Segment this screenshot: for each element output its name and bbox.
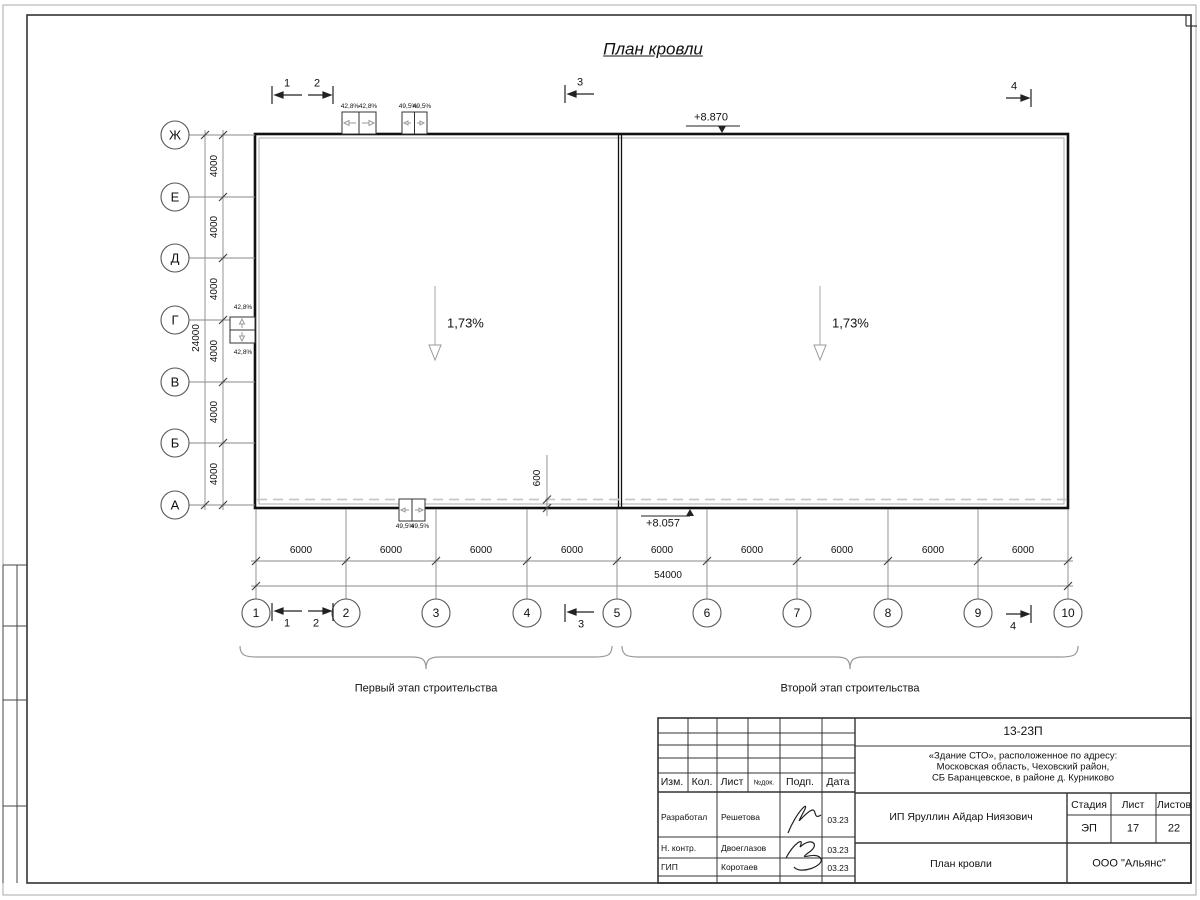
stage-braces	[240, 646, 1078, 669]
section-mark-3: 3	[577, 78, 583, 89]
sheet-title: План кровли	[930, 859, 992, 870]
dim-6000: 6000	[470, 546, 492, 556]
tb-header-list: Лист	[721, 777, 744, 788]
grid-col-label: 5	[614, 607, 621, 619]
dim-6000: 6000	[290, 546, 312, 556]
dim-4000: 4000	[210, 463, 220, 485]
tb-date: 03.23	[827, 816, 848, 825]
tb-role: ГИП	[661, 863, 678, 872]
tb-list-value: 17	[1127, 824, 1139, 835]
tb-role: Разработал	[661, 813, 707, 822]
grid-col-label: 1	[253, 607, 260, 619]
grid-col-label: 3	[433, 607, 440, 619]
grid-col-label: 4	[524, 607, 531, 619]
project-name-line3: СБ Баранцевское, в районе д. Курниково	[932, 773, 1114, 783]
grid-col-label: 6	[704, 607, 711, 619]
grid-row-label: Е	[171, 191, 180, 204]
tb-stadia-value: ЭП	[1081, 824, 1097, 835]
tb-name: Решетова	[721, 813, 760, 822]
col-grid-bubbles	[242, 599, 1082, 627]
slope-label-left: 1,73%	[447, 317, 484, 330]
tb-header-data: Дата	[826, 777, 849, 788]
grid-row-label: В	[171, 376, 180, 389]
dim-600: 600	[533, 470, 543, 487]
tb-header-listov: Листов	[1157, 800, 1191, 811]
hatch-slope-label: 42,8%	[234, 350, 252, 357]
org-name: ООО "Альянс"	[1092, 859, 1166, 870]
dim-6000: 6000	[651, 546, 673, 556]
tb-name: Двоеглазов	[721, 844, 766, 853]
dim-6000: 6000	[380, 546, 402, 556]
grid-col-label: 8	[885, 607, 892, 619]
stage-label-first: Первый этап строительства	[355, 684, 498, 695]
section-mark-2: 2	[313, 619, 319, 630]
hatch-slope-label: 42,8%	[234, 305, 252, 312]
dim-4000: 4000	[210, 278, 220, 300]
tb-header-podp: Подп.	[786, 777, 814, 788]
tb-date: 03.23	[827, 864, 848, 873]
dim-4000: 4000	[210, 401, 220, 423]
dim-6000: 6000	[741, 546, 763, 556]
section-mark-2: 2	[314, 79, 320, 90]
dim-54000: 54000	[654, 571, 682, 581]
dim-6000: 6000	[831, 546, 853, 556]
tb-name: Коротаев	[721, 863, 758, 872]
hatch-slope-label: 42,8%	[341, 104, 359, 111]
section-mark-3: 3	[578, 620, 584, 631]
dim-6000: 6000	[561, 546, 583, 556]
project-name-line1: «Здание СТО», расположенное по адресу:	[929, 751, 1118, 761]
slope-label-right: 1,73%	[832, 317, 869, 330]
drawing-sheet: План кровли Ж Е Д Г В Б А 1 2 3 4 5 6 7 …	[0, 0, 1200, 900]
hatch-slope-label: 42,8%	[359, 104, 377, 111]
dim-24000: 24000	[192, 324, 202, 352]
hatch-slope-label: 49,5%	[411, 524, 429, 531]
section-mark-1: 1	[284, 619, 290, 630]
grid-row-label: Б	[171, 437, 180, 450]
grid-col-label: 9	[975, 607, 982, 619]
elevation-top: +8.870	[694, 113, 728, 124]
dim-4000: 4000	[210, 340, 220, 362]
signature-scribbles	[786, 806, 821, 870]
tb-header-kol: Кол.	[692, 777, 713, 788]
hatch-slope-label: 49,5%	[413, 104, 431, 111]
tb-header-list2: Лист	[1122, 800, 1145, 811]
grid-col-label: 7	[794, 607, 801, 619]
grid-row-label: А	[171, 499, 180, 512]
elevation-bottom: +8.057	[646, 519, 680, 530]
grid-row-label: Г	[171, 314, 178, 327]
dim-4000: 4000	[210, 155, 220, 177]
section-mark-4: 4	[1010, 622, 1016, 633]
doc-code: 13-23П	[1003, 725, 1042, 737]
building-outline	[255, 134, 1068, 508]
tb-date: 03.23	[827, 846, 848, 855]
section-mark-4: 4	[1011, 82, 1017, 93]
grid-row-label: Д	[171, 252, 180, 265]
dim-4000: 4000	[210, 216, 220, 238]
client-name: ИП Яруллин Айдар Ниязович	[889, 812, 1032, 823]
dim-6000: 6000	[1012, 546, 1034, 556]
tb-header-stadia: Стадия	[1071, 800, 1107, 811]
project-name-line2: Московская область, Чеховский район,	[937, 762, 1110, 772]
page-title: План кровли	[603, 41, 703, 58]
tb-header-izm: Изм.	[661, 777, 684, 788]
section-mark-1: 1	[284, 79, 290, 90]
dim-6000: 6000	[922, 546, 944, 556]
tb-listov-value: 22	[1168, 824, 1180, 835]
left-margin-strip	[3, 565, 27, 883]
tb-role: Н. контр.	[661, 844, 696, 853]
grid-col-label: 2	[343, 607, 350, 619]
stage-label-second: Второй этап строительства	[781, 684, 920, 695]
grid-row-label: Ж	[169, 129, 181, 142]
tb-header-ndok: №док.	[754, 780, 775, 787]
grid-col-label: 10	[1061, 607, 1074, 619]
